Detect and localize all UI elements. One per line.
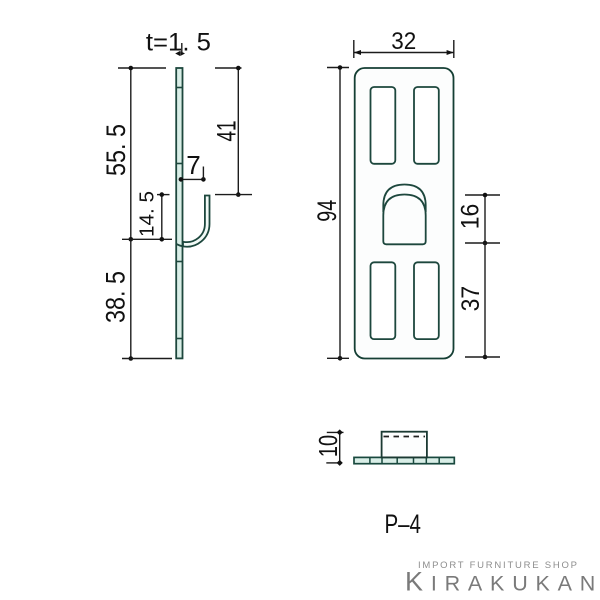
svg-text:IMPORT FURNITURE SHOP: IMPORT FURNITURE SHOP [418, 560, 577, 571]
svg-text:32: 32 [391, 28, 416, 55]
svg-text:16: 16 [457, 204, 485, 230]
svg-text:14. 5: 14. 5 [137, 191, 159, 237]
svg-text:7: 7 [186, 150, 200, 180]
svg-text:KIRAKUKAN: KIRAKUKAN [405, 567, 600, 597]
svg-text:41: 41 [212, 121, 242, 142]
svg-text:38. 5: 38. 5 [101, 271, 131, 323]
svg-text:37: 37 [457, 286, 485, 312]
svg-text:10: 10 [313, 435, 343, 457]
svg-text:P–4: P–4 [384, 509, 421, 539]
svg-text:94: 94 [312, 200, 342, 222]
svg-text:55. 5: 55. 5 [101, 124, 131, 176]
